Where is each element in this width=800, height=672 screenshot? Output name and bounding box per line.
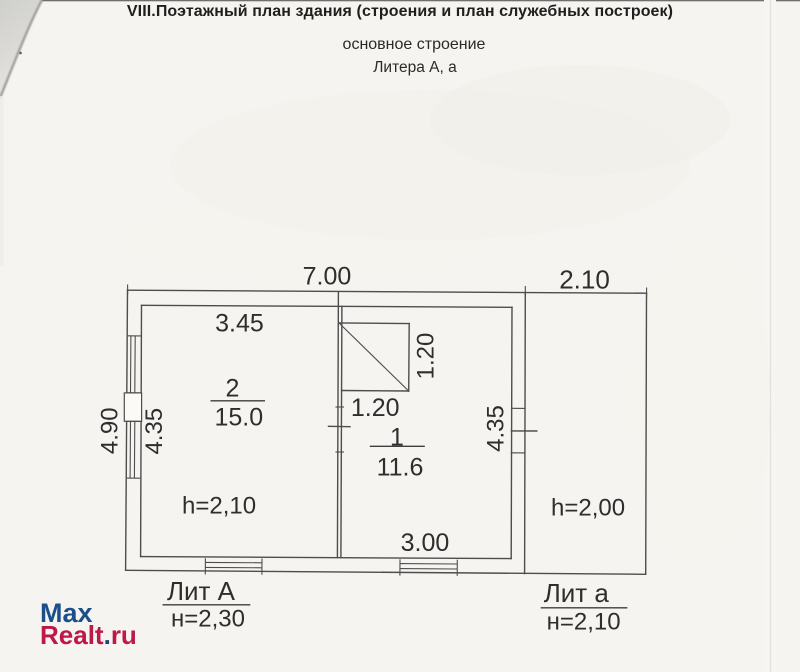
svg-text:1.20: 1.20 [351,394,400,422]
svg-text:2.10: 2.10 [559,265,610,295]
svg-text:4.35: 4.35 [141,408,168,455]
svg-text:11.6: 11.6 [377,454,424,482]
svg-text:7.00: 7.00 [303,263,352,291]
svg-text:3.45: 3.45 [215,310,264,338]
svg-text:4.90: 4.90 [97,407,124,454]
svg-text:h=2,10: h=2,10 [182,493,256,520]
svg-text:Лит а: Лит а [544,578,610,608]
svg-text:1: 1 [390,424,404,452]
svg-text:Лит А: Лит А [167,576,236,606]
svg-text:2: 2 [226,375,240,403]
svg-text:н=2,10: н=2,10 [547,609,621,636]
svg-text:1.20: 1.20 [413,333,440,380]
svg-text:15.0: 15.0 [214,403,263,431]
svg-text:h=2,00: h=2,00 [551,495,625,522]
svg-text:н=2,30: н=2,30 [171,606,245,633]
svg-text:3.00: 3.00 [401,529,450,557]
svg-text:4.35: 4.35 [483,405,510,452]
